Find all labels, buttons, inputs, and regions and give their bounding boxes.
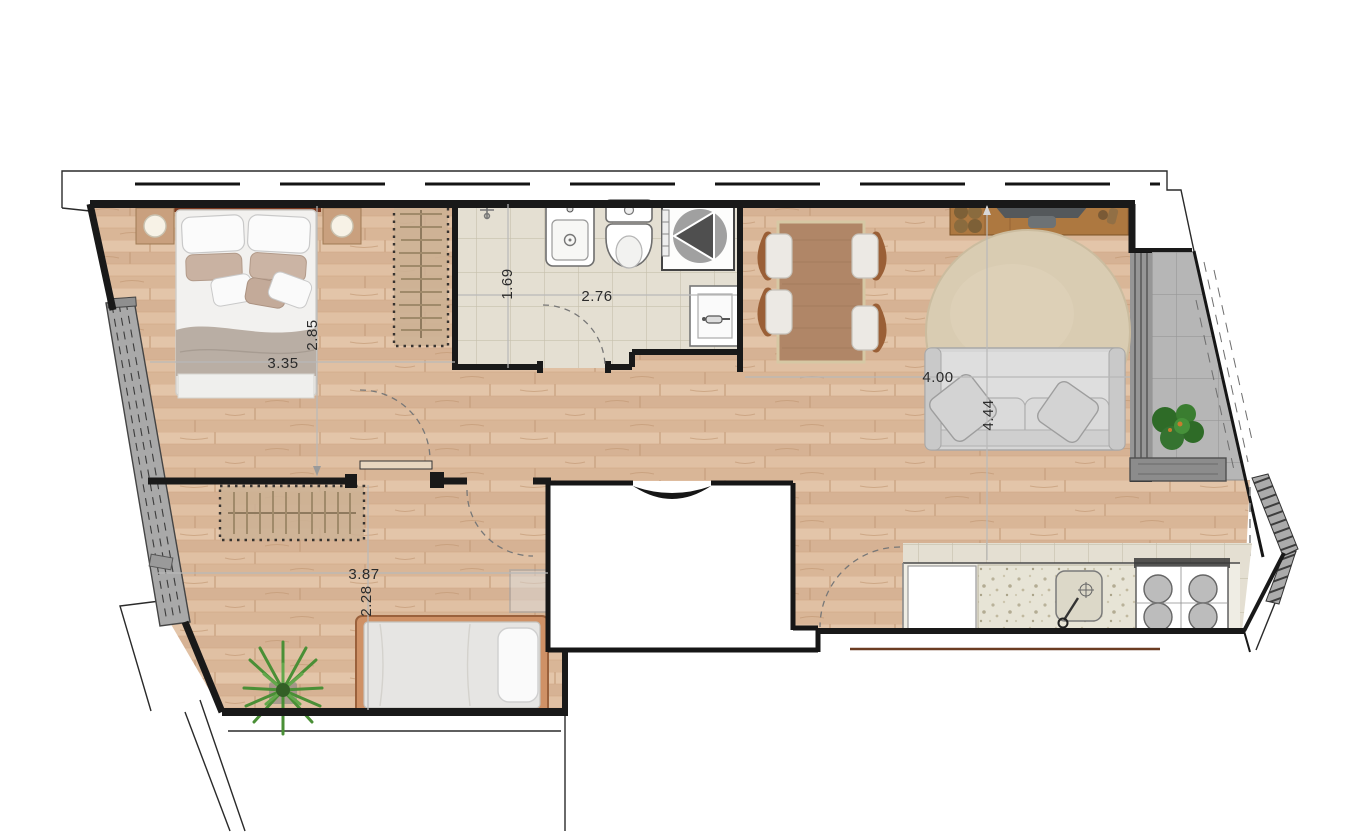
floor-plan-canvas: 3.35 2.85 1.69 2.76 4.00 4.44 3.87 2.28 bbox=[0, 0, 1372, 834]
wardrobe-icon bbox=[394, 202, 448, 346]
dim-label-bathroom-depth: 1.69 bbox=[499, 268, 516, 299]
chair-icon bbox=[852, 234, 882, 278]
sofa-icon bbox=[925, 348, 1125, 450]
open-door-leaf bbox=[360, 461, 432, 469]
stair-core bbox=[548, 481, 818, 652]
floor-plan: 3.35 2.85 1.69 2.76 4.00 4.44 3.87 2.28 bbox=[0, 0, 1372, 834]
kitchen-sink-icon bbox=[1056, 571, 1102, 628]
wall-pillar bbox=[430, 472, 444, 488]
dim-label-bathroom-width: 2.76 bbox=[581, 288, 612, 305]
appliance-icon bbox=[908, 566, 976, 630]
dim-label-bedroom2-depth: 2.28 bbox=[358, 585, 375, 616]
wardrobe-icon bbox=[220, 486, 364, 540]
fixture-box bbox=[510, 570, 548, 612]
dim-label-living-depth: 4.44 bbox=[980, 399, 997, 430]
wall-pillar bbox=[345, 474, 357, 488]
wall-pillar bbox=[537, 361, 543, 373]
single-bed-icon bbox=[356, 616, 548, 714]
dim-label-living-width: 4.00 bbox=[922, 369, 953, 386]
dim-label-bedroom2-width: 3.87 bbox=[348, 566, 379, 583]
sink-icon bbox=[546, 202, 594, 266]
dim-label-bedroom1-width: 3.35 bbox=[267, 355, 298, 372]
chair-icon bbox=[762, 290, 792, 334]
dim-label-bedroom1-depth: 2.85 bbox=[304, 319, 321, 350]
cooktop-icon bbox=[1134, 558, 1230, 631]
lamp-icon bbox=[331, 215, 353, 237]
kitchen bbox=[903, 543, 1252, 631]
pillow-icon bbox=[498, 628, 538, 702]
shower-icon bbox=[662, 202, 734, 270]
planter bbox=[1130, 458, 1226, 481]
lamp-icon bbox=[144, 215, 166, 237]
chair-icon bbox=[762, 234, 792, 278]
wall-pillar bbox=[605, 361, 611, 373]
chair-icon bbox=[852, 306, 882, 350]
toilet-icon bbox=[606, 200, 652, 268]
